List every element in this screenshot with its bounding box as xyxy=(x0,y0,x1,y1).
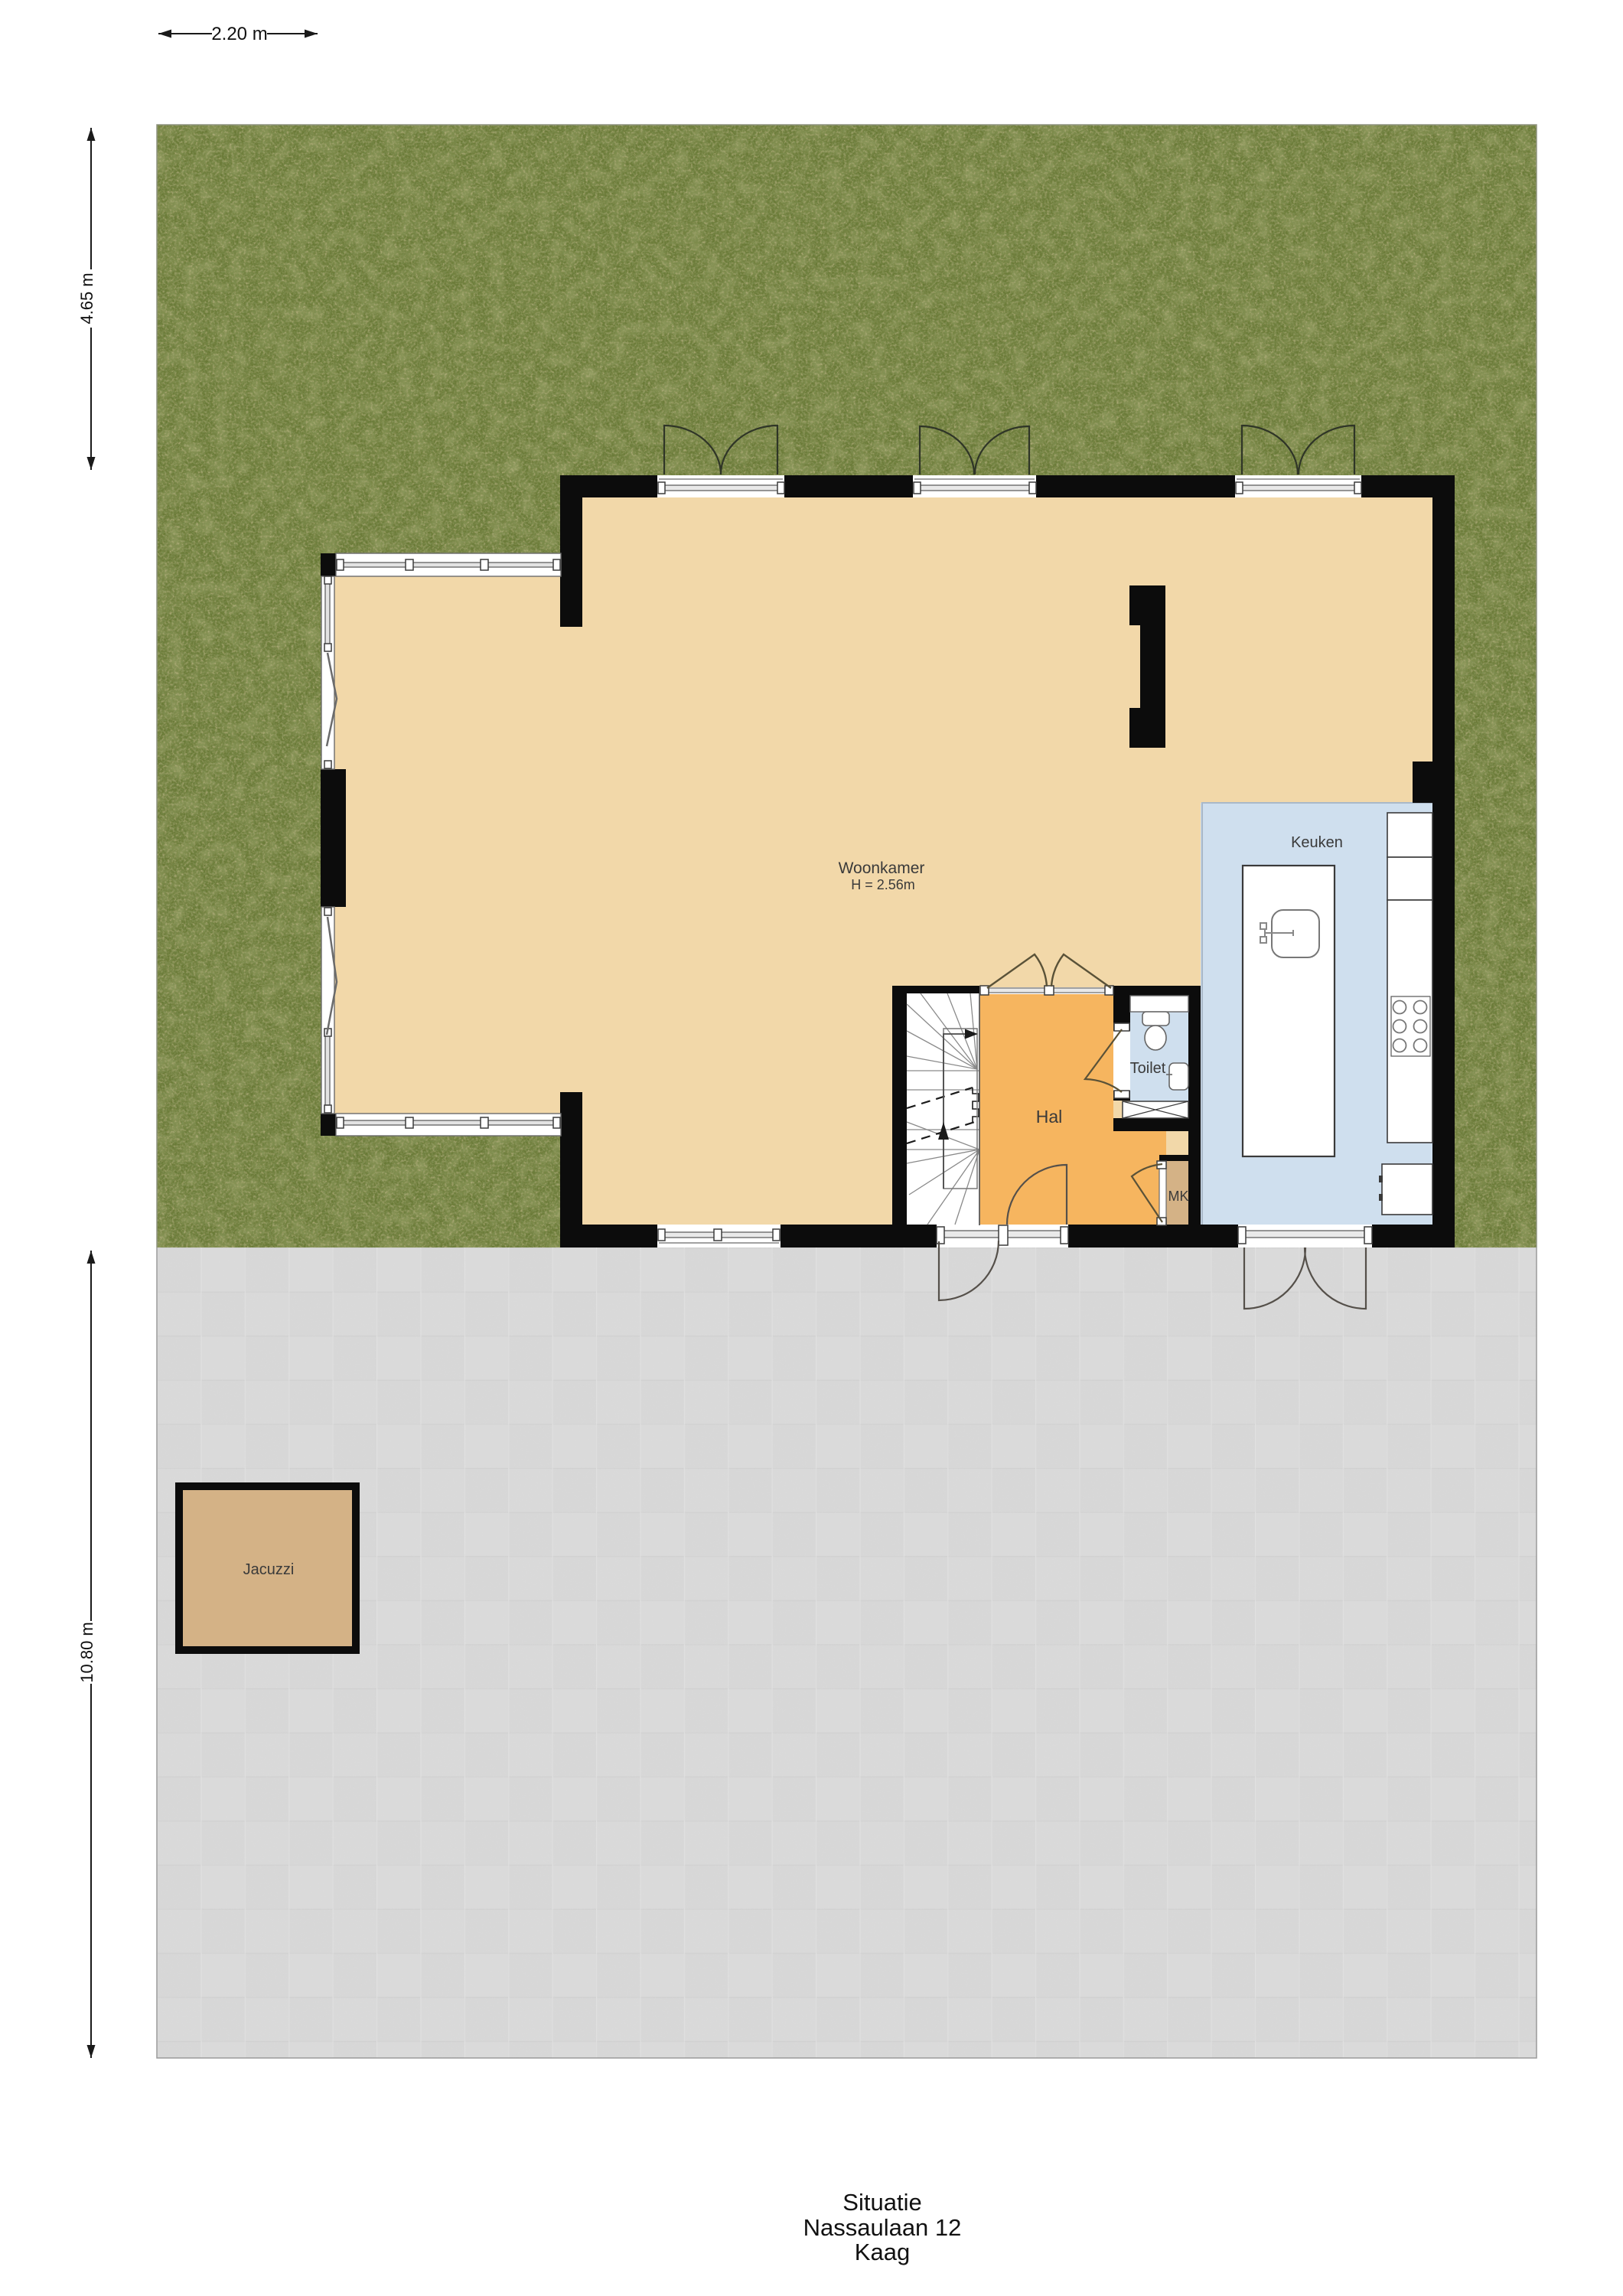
svg-text:Toilet: Toilet xyxy=(1130,1060,1166,1077)
svg-text:Jacuzzi: Jacuzzi xyxy=(243,1561,295,1578)
svg-text:MK: MK xyxy=(1168,1189,1189,1204)
svg-text:Keuken: Keuken xyxy=(1291,834,1343,851)
svg-text:Nassaulaan 12: Nassaulaan 12 xyxy=(803,2214,962,2241)
svg-text:4.65 m: 4.65 m xyxy=(77,272,96,324)
svg-text:Kaag: Kaag xyxy=(855,2239,910,2265)
svg-text:Woonkamer: Woonkamer xyxy=(839,859,925,877)
svg-text:10.80 m: 10.80 m xyxy=(77,1622,96,1683)
svg-text:Hal: Hal xyxy=(1036,1107,1063,1127)
svg-text:H = 2.56m: H = 2.56m xyxy=(851,877,915,892)
svg-text:Situatie: Situatie xyxy=(842,2189,921,2216)
svg-text:2.20 m: 2.20 m xyxy=(211,24,267,44)
